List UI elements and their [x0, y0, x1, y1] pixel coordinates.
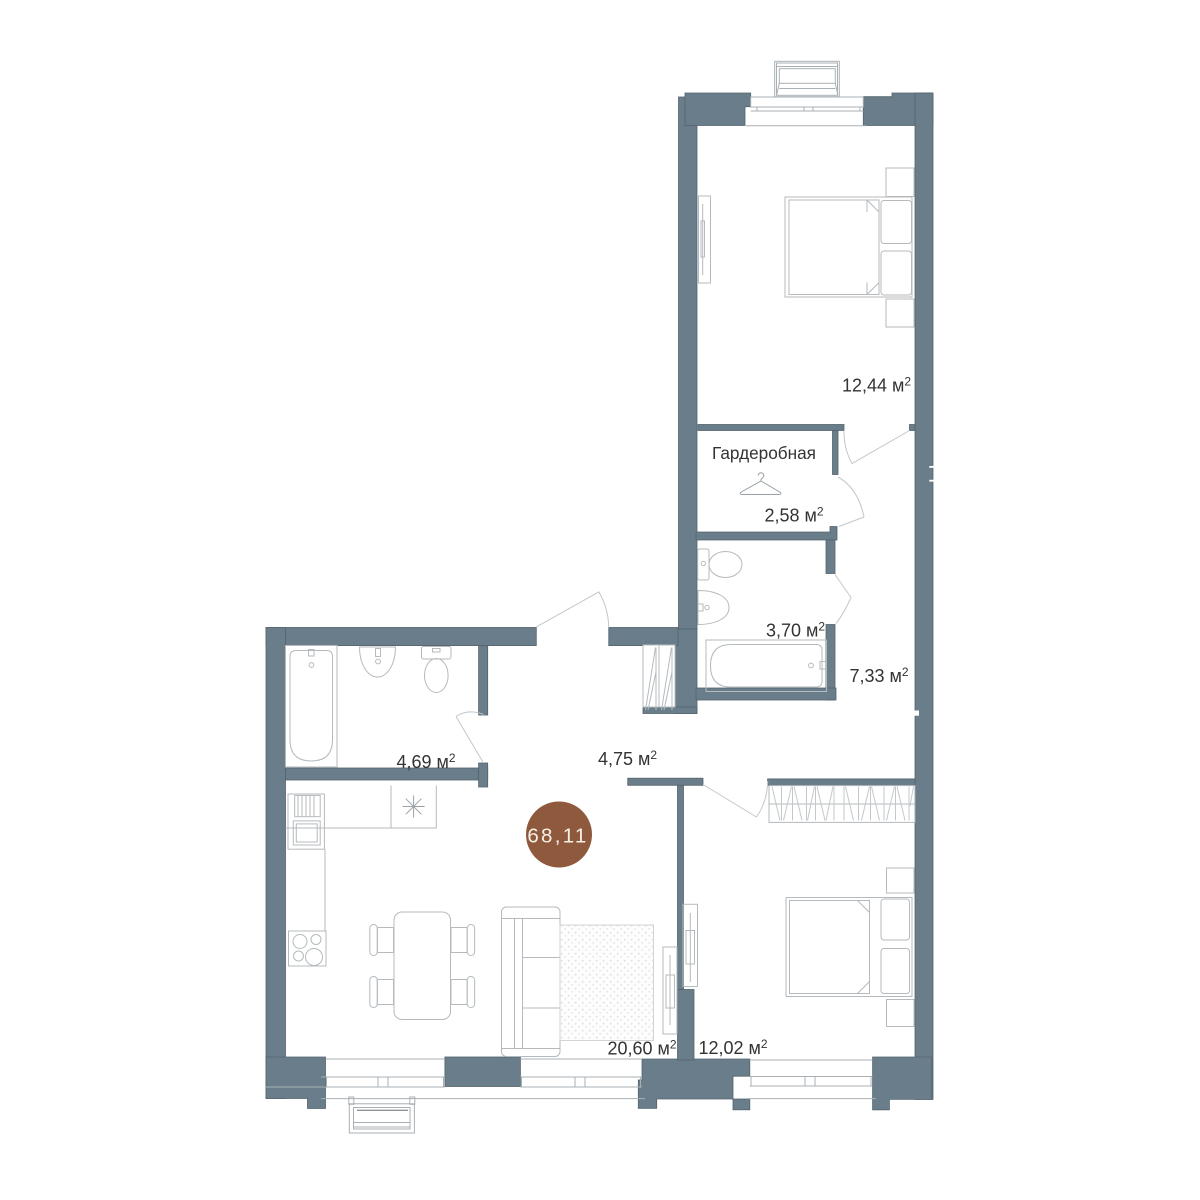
svg-text:68,11: 68,11	[527, 825, 588, 848]
svg-text:7,33 м2: 7,33 м2	[850, 665, 909, 686]
svg-text:12,44 м2: 12,44 м2	[842, 375, 911, 396]
svg-text:4,75 м2: 4,75 м2	[598, 748, 657, 769]
svg-text:2,58 м2: 2,58 м2	[765, 505, 824, 526]
svg-text:Гардеробная: Гардеробная	[712, 443, 816, 463]
svg-text:3,70 м2: 3,70 м2	[766, 620, 825, 641]
svg-text:20,60 м2: 20,60 м2	[608, 1038, 677, 1059]
svg-text:4,69 м2: 4,69 м2	[397, 751, 456, 772]
svg-text:12,02 м2: 12,02 м2	[699, 1037, 768, 1058]
